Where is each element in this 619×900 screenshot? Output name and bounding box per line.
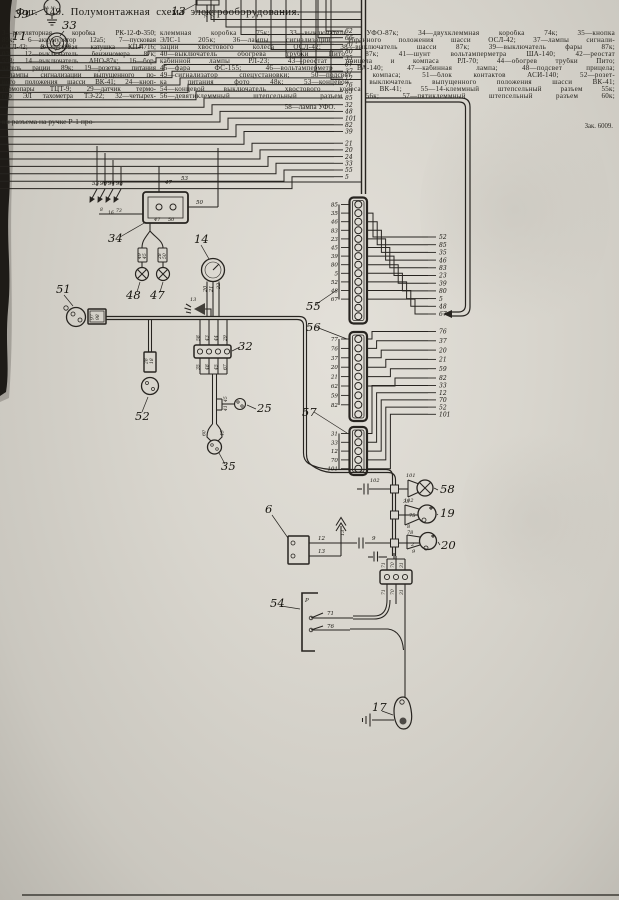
component-label-51: 51	[56, 282, 71, 296]
wire-label: 21	[209, 286, 215, 293]
wire-label: 71	[381, 562, 387, 568]
wire-label: 23	[438, 273, 447, 280]
component-label-25: 25	[256, 401, 272, 415]
component-label-35: 35	[221, 459, 236, 473]
wire-label: 70	[390, 562, 396, 568]
wire-label: 35	[196, 364, 202, 370]
wire-label: 98	[95, 314, 101, 320]
wire-label: 20	[330, 365, 339, 371]
legend-col-left: 3—регуляторная коробка РК-12-Ф-350;89к; …	[2, 30, 156, 100]
component-label-6: 6	[265, 502, 272, 516]
wire-label: 98	[116, 181, 123, 187]
wire-label: 77	[331, 337, 339, 343]
component-label-14: 14	[194, 232, 209, 246]
wire-label: 21	[330, 375, 338, 381]
wire-label: 46	[438, 257, 447, 264]
wire-label: 50	[168, 217, 175, 223]
wire-label: 83	[331, 228, 339, 234]
wire-label: 71	[327, 611, 334, 617]
wiring-diagram: 6266708035673712768385324810182392120243…	[0, 0, 619, 745]
legend-line: 03; 12—выключатель бензиномера 87к;	[2, 51, 156, 58]
component-label-52: 52	[135, 409, 150, 423]
wire-label: 52	[439, 404, 447, 411]
wire-label: 33	[331, 440, 339, 446]
wire-label: 70	[439, 397, 447, 404]
wire-label: 35	[331, 211, 339, 217]
wire-label: Р	[304, 598, 309, 604]
scanned-schematic-page: 6266708035673712768385324810182392120243…	[0, 0, 619, 900]
wire-label: 60	[202, 430, 208, 436]
wire-label: 9	[372, 536, 376, 542]
wire-label: 47	[164, 180, 172, 186]
wire-label: 39	[439, 280, 447, 287]
component-label-56: 56	[306, 320, 321, 334]
wire-label: 41	[223, 405, 229, 412]
legend-line: —лампы сигнализации выпущенного по-	[2, 72, 156, 79]
legend-line: гор ЭЛ тахометра ТЭ-22; 32—четырех-	[2, 93, 156, 100]
wire-label: 44	[214, 335, 220, 342]
component-label-20: 20	[440, 538, 456, 552]
wire-label: 82	[439, 375, 447, 382]
legend-line: 49—сигнализатор спецустановки; 50—подсве…	[160, 72, 615, 79]
wire-label: 13	[340, 530, 346, 536]
legend-line: кабинной лампы РЛ-23; 43—реостат прицела…	[160, 58, 615, 65]
wire-label: 39	[345, 129, 353, 136]
wire-label: 48	[330, 289, 339, 295]
wire-label: 85	[439, 242, 447, 249]
wire-label: 31	[399, 589, 405, 595]
wire-label: 97	[90, 314, 96, 320]
wire-label: 70	[390, 589, 396, 595]
wire-label: 18	[149, 358, 155, 364]
print-imprint: Зак. 6009.	[585, 123, 613, 130]
wire-label: 83	[439, 265, 447, 272]
scan-bottom-edge	[22, 894, 619, 896]
wire-label: 31	[399, 562, 405, 568]
wire-label: 2	[410, 542, 414, 548]
wire-label: 67	[223, 364, 229, 370]
wire-label: 47	[153, 217, 161, 223]
legend-line: 89к; 6—аккумулятор 12а5; 7—пусковая	[2, 37, 156, 44]
wire-label: 43	[205, 335, 211, 342]
component-label-55: 55	[306, 299, 321, 313]
wire-label: 37	[439, 338, 447, 345]
wire-label: 76	[327, 624, 334, 630]
wire-label: 45	[214, 364, 220, 371]
wire-label: 76	[439, 329, 447, 336]
wire-label: 12	[439, 390, 447, 397]
component-label-47: 47	[149, 288, 165, 302]
component-label-48: 48	[125, 288, 141, 302]
wire-label: 76	[331, 346, 339, 352]
legend-line: термопары ТЦТ-9; 29—датчик термо-	[2, 86, 156, 93]
wire-label: 45	[142, 253, 148, 260]
wire-label: 50	[162, 253, 168, 259]
legend-line: ОСЛ-42; 9—пусковая катушка КП-4716;	[2, 44, 156, 51]
wire-label: 35	[439, 250, 447, 257]
component-label-19: 19	[440, 506, 455, 520]
wire-label: 13	[190, 297, 196, 303]
legend-line: 45—фара ФС-155; 46—вольтамперметр ВА-140…	[160, 65, 615, 72]
wire-label: 101	[406, 473, 416, 479]
component-label-58: 58	[440, 482, 455, 496]
wire-label: 94	[108, 181, 115, 187]
wire-label: 102	[370, 478, 380, 484]
wire-label: 101	[327, 467, 338, 473]
wire-label: 52	[439, 234, 447, 241]
wire-label: 101	[439, 412, 450, 419]
wire-label: 62	[331, 384, 339, 390]
figure-title: Фиг. 149. Полумонтажная схема электрообо…	[8, 6, 308, 18]
legend-line: 3—регуляторная коробка РК-12-Ф-350;	[2, 30, 156, 37]
wire-label: 80	[439, 288, 447, 295]
wire-label: 45	[223, 396, 229, 403]
wire-label: 20	[438, 347, 447, 354]
wire-label: 80	[331, 263, 339, 269]
wire-label: 71	[381, 589, 387, 595]
wire-label: 73	[116, 208, 122, 214]
wire-label: 46	[330, 220, 339, 226]
wire-label: 22	[216, 283, 222, 290]
component-label-17: 17	[372, 700, 387, 714]
wire-label: 13	[318, 549, 325, 555]
legend-line: 40—выключатель обогрева трубки Пито 87к;…	[160, 51, 615, 58]
wire-label: 58	[196, 335, 202, 341]
wire-label: 39	[331, 254, 339, 260]
legend-line: клеммная коробка 75к; 33—выключатель УФО…	[160, 30, 615, 37]
wire-label: 5	[345, 174, 349, 181]
wire-label: 9	[412, 549, 416, 555]
wire-label: 67	[331, 297, 339, 303]
wire-label: 23	[330, 237, 339, 243]
legend-col-right: клеммная коробка 75к; 33—выключатель УФО…	[160, 30, 615, 100]
component-label-57: 57	[302, 405, 317, 419]
component-label-32: 32	[238, 339, 253, 353]
wire-label: 5	[334, 271, 338, 277]
wire-label: 53	[181, 176, 188, 182]
wire-label: 45	[220, 430, 226, 437]
cutoff-text-fragment: ки разъема на ручке Р-1 про-	[2, 117, 95, 126]
wire-label: 96	[100, 181, 107, 187]
terminal-blocks	[341, 198, 367, 476]
wire-label: 12	[318, 536, 325, 542]
wire-label: 52	[331, 280, 339, 286]
wire-label: 70	[331, 458, 339, 464]
wire-label: 31	[331, 432, 338, 438]
legend-line: ного положения шасси ВК-41; 24—кноп-	[2, 79, 156, 86]
wire-label: 53	[92, 181, 99, 187]
wire-label: 8	[100, 207, 103, 213]
legend-line: зации хвостового колеса ОСЛ-42; 38—выклю…	[160, 44, 615, 51]
wire-label: 33	[403, 499, 409, 505]
wire-label: 12	[331, 449, 339, 455]
legend-line: ка питания фото 48к; 53—концевой выключа…	[160, 79, 615, 86]
wire-label: 59	[439, 366, 447, 373]
legend-line: чатель рации 89к; 19—розетка питания	[2, 65, 156, 72]
wire-label: 75	[409, 513, 415, 519]
wire-label: 16	[108, 210, 114, 216]
wire-label: 82	[331, 403, 339, 409]
legend-line: 54—концевой выключатель хвостового колес…	[160, 86, 615, 93]
wire-label: 78	[407, 530, 413, 536]
wire-label: 85	[331, 203, 339, 209]
legend-line: 56—девятиклеммный штепсельный разъем 56к…	[160, 93, 615, 100]
wire-label: 48	[438, 304, 447, 311]
wire-label: 28	[144, 358, 150, 365]
wire-label: 29	[223, 335, 229, 342]
legend-line: ЭЛС-1 205к; 36—лампы сигнализации убранн…	[160, 37, 615, 44]
legend-line: 593; 14—выключатель АНО-87к; 16—бор-	[2, 58, 156, 65]
wire-label: 59	[331, 393, 339, 399]
wire-label: 21	[438, 357, 447, 364]
wire-label: 5	[439, 296, 443, 303]
component-label-54: 54	[270, 596, 285, 610]
wire-label: 37	[331, 356, 339, 362]
wire-label: 45	[330, 246, 339, 252]
wire-label: 48	[205, 364, 211, 371]
wire-label: 50	[196, 200, 203, 206]
component-label-34: 34	[108, 231, 123, 245]
legend-last-line: 58—лампа УФО.	[160, 103, 460, 111]
fanout-wires	[367, 213, 436, 469]
wire-label: 67	[439, 311, 447, 318]
wire-label: 33	[439, 383, 447, 390]
